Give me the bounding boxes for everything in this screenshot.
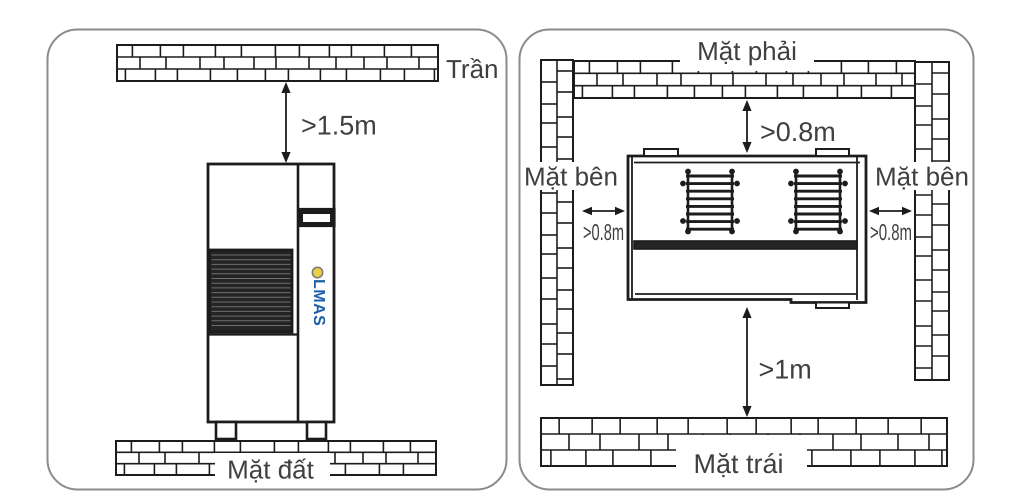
svg-text:>1m: >1m — [759, 355, 812, 385]
svg-text:>0.8m: >0.8m — [760, 117, 836, 147]
svg-text:LMAS: LMAS — [310, 279, 327, 326]
svg-text:Mặt bên: Mặt bên — [875, 162, 969, 192]
svg-text:>0.8m: >0.8m — [870, 219, 912, 245]
svg-text:Mặt đất: Mặt đất — [227, 455, 314, 485]
svg-text:Mặt phải: Mặt phải — [697, 36, 797, 66]
svg-text:Mặt trái: Mặt trái — [693, 449, 783, 479]
svg-text:Trần: Trần — [446, 54, 499, 84]
svg-text:Mặt bên: Mặt bên — [524, 162, 618, 192]
svg-text:>0.8m: >0.8m — [583, 219, 624, 245]
svg-text:>1.5m: >1.5m — [301, 111, 377, 141]
